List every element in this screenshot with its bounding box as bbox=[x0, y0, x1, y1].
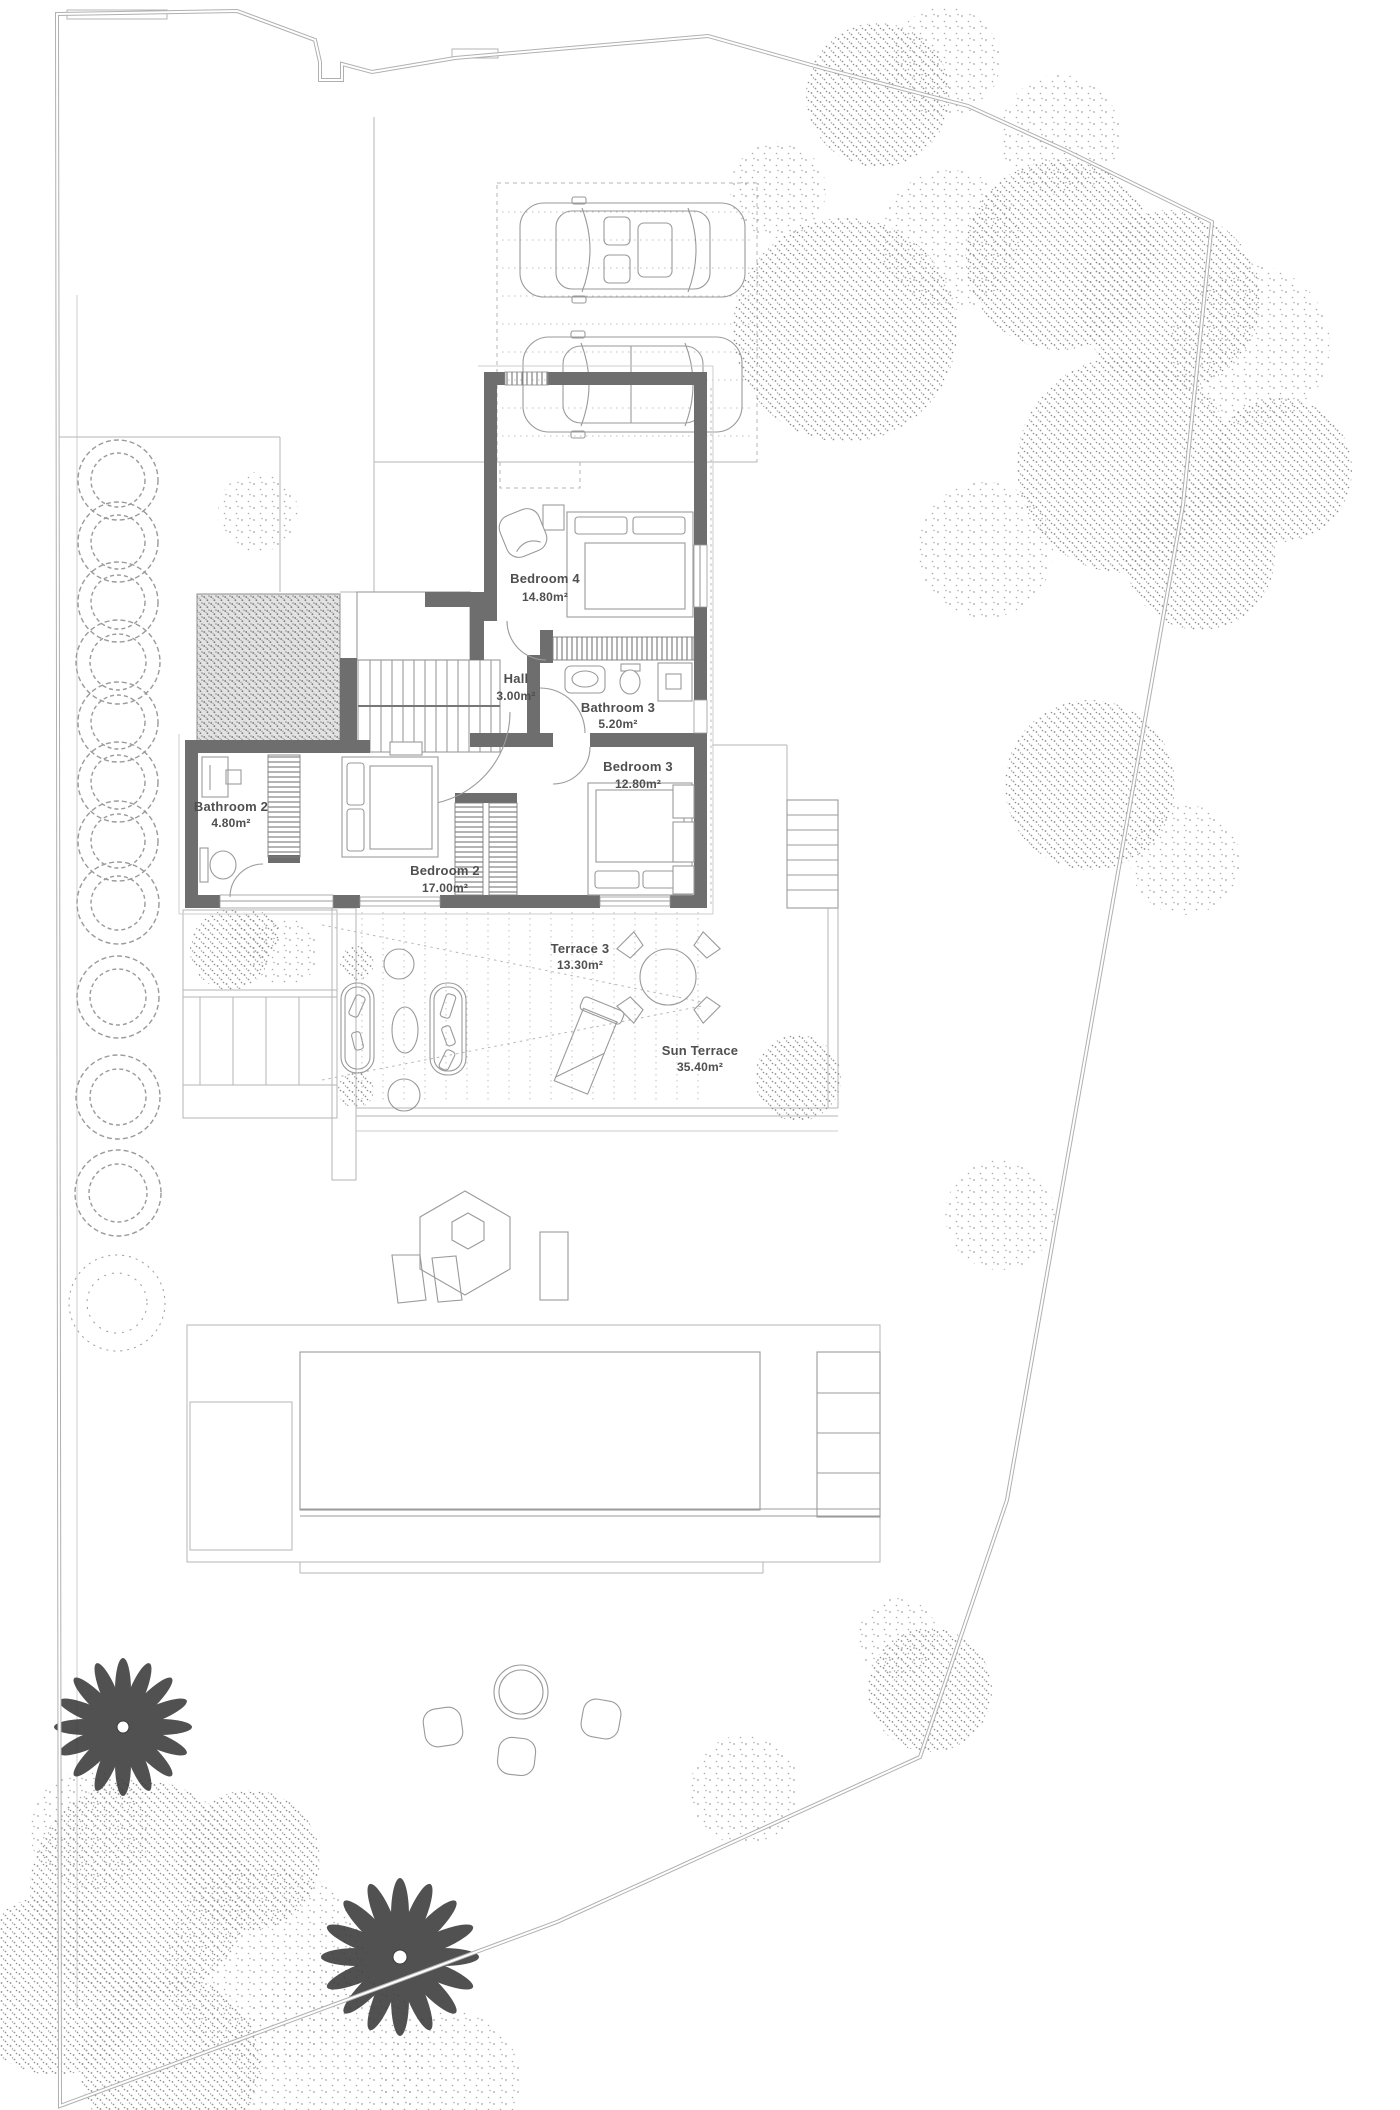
palm-tree-icon bbox=[321, 1878, 479, 2036]
bedroom2-area: 17.00m² bbox=[422, 881, 468, 895]
bedroom3-area: 12.80m² bbox=[615, 777, 661, 791]
pool bbox=[300, 1352, 760, 1510]
bathroom3-fixtures bbox=[565, 663, 692, 701]
hall-name: Hall bbox=[504, 671, 529, 686]
planter-box bbox=[183, 910, 337, 1118]
bush-row bbox=[69, 440, 165, 1351]
label-sun-terrace: Sun Terrace 35.40m² bbox=[662, 1043, 738, 1074]
umbrella-icon bbox=[420, 1191, 510, 1295]
bedroom4-name: Bedroom 4 bbox=[510, 571, 580, 586]
fire-pit bbox=[422, 1665, 623, 1777]
bathroom2-area: 4.80m² bbox=[211, 816, 250, 830]
car-icon bbox=[520, 197, 745, 303]
parking-area bbox=[497, 183, 757, 488]
floor-plan-drawing: Bedroom 4 14.80m² Hall 3.00m² Bathroom 3… bbox=[0, 0, 1400, 2110]
bedroom3-name: Bedroom 3 bbox=[603, 759, 673, 774]
bathroom3-name: Bathroom 3 bbox=[581, 700, 655, 715]
sun-lounger bbox=[341, 983, 374, 1073]
shrub bbox=[231, 911, 279, 959]
stool bbox=[388, 1079, 420, 1111]
site-plan-page: Bedroom 4 14.80m² Hall 3.00m² Bathroom 3… bbox=[0, 0, 1400, 2110]
pool-area bbox=[187, 1325, 880, 1573]
bedroom2-name: Bedroom 2 bbox=[410, 863, 480, 878]
sun-lounger bbox=[430, 983, 466, 1075]
trees bbox=[0, 7, 1352, 2110]
hall-area: 3.00m² bbox=[496, 689, 535, 703]
terrace3-area: 13.30m² bbox=[557, 958, 603, 972]
bedroom3-furniture bbox=[588, 783, 694, 895]
bathroom2-name: Bathroom 2 bbox=[194, 799, 268, 814]
bedroom4-area: 14.80m² bbox=[522, 590, 568, 604]
bathroom3-area: 5.20m² bbox=[598, 717, 637, 731]
bedroom2-furniture bbox=[342, 742, 438, 857]
parasol-seating bbox=[392, 1191, 568, 1303]
house-plan bbox=[185, 372, 707, 908]
terrace3-name: Terrace 3 bbox=[551, 941, 610, 956]
palm-tree-icon bbox=[54, 1658, 192, 1796]
outdoor-stairs bbox=[787, 800, 838, 908]
label-bathroom-3: Bathroom 3 5.20m² bbox=[581, 700, 655, 731]
pool-steps bbox=[817, 1352, 880, 1517]
label-bathroom-2: Bathroom 2 4.80m² bbox=[194, 799, 268, 830]
stool bbox=[384, 949, 414, 979]
side-table bbox=[392, 1007, 418, 1053]
gravel-patio bbox=[197, 594, 340, 742]
dining-set bbox=[617, 932, 720, 1023]
sun-terrace-name: Sun Terrace bbox=[662, 1043, 738, 1058]
label-terrace-3: Terrace 3 13.30m² bbox=[551, 941, 610, 972]
sun-terrace-area: 35.40m² bbox=[677, 1060, 723, 1074]
